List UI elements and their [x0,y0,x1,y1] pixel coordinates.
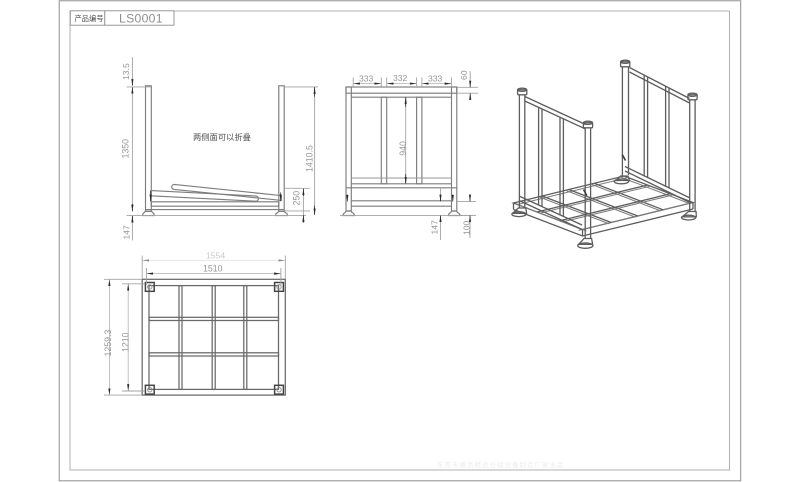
svg-text:250: 250 [292,191,302,206]
svg-text:1259.3: 1259.3 [103,329,113,356]
svg-text:60: 60 [459,70,469,80]
svg-text:1554: 1554 [206,251,225,261]
svg-text:LS0001: LS0001 [119,12,163,26]
svg-text:333: 333 [359,74,374,84]
svg-text:两侧面可以折叠: 两侧面可以折叠 [193,132,251,142]
svg-text:147: 147 [430,220,440,235]
svg-text:产品编号: 产品编号 [75,14,104,23]
svg-text:东莞市横沥精达仓储设备制造厂家出品: 东莞市横沥精达仓储设备制造厂家出品 [437,460,565,469]
svg-text:1350: 1350 [121,139,131,159]
svg-text:333: 333 [428,74,443,84]
svg-text:147: 147 [122,225,132,240]
svg-text:332: 332 [393,73,408,83]
svg-text:1410.5: 1410.5 [305,145,315,172]
svg-text:100: 100 [462,220,472,235]
svg-text:1210: 1210 [120,332,130,352]
svg-text:940: 940 [398,141,408,156]
svg-text:1510: 1510 [203,264,223,274]
svg-text:13.5: 13.5 [121,63,131,80]
